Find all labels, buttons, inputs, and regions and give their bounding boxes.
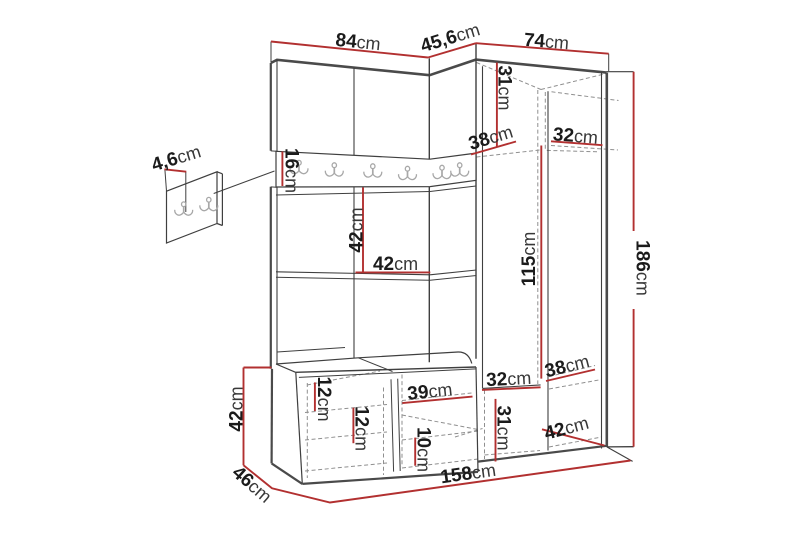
svg-text:12cm: 12cm — [313, 376, 334, 421]
svg-text:12cm: 12cm — [351, 406, 372, 451]
svg-text:31cm: 31cm — [493, 405, 514, 450]
svg-text:42cm: 42cm — [347, 207, 368, 252]
svg-text:115cm: 115cm — [519, 232, 540, 287]
svg-text:32cm: 32cm — [486, 368, 532, 391]
svg-text:31cm: 31cm — [494, 65, 515, 110]
svg-text:10cm: 10cm — [413, 427, 434, 472]
svg-text:32cm: 32cm — [552, 124, 599, 148]
svg-text:16cm: 16cm — [281, 148, 302, 193]
svg-text:42cm: 42cm — [373, 254, 418, 275]
svg-text:42cm: 42cm — [227, 386, 248, 431]
svg-text:186cm: 186cm — [632, 240, 653, 296]
svg-text:74cm: 74cm — [523, 30, 570, 55]
